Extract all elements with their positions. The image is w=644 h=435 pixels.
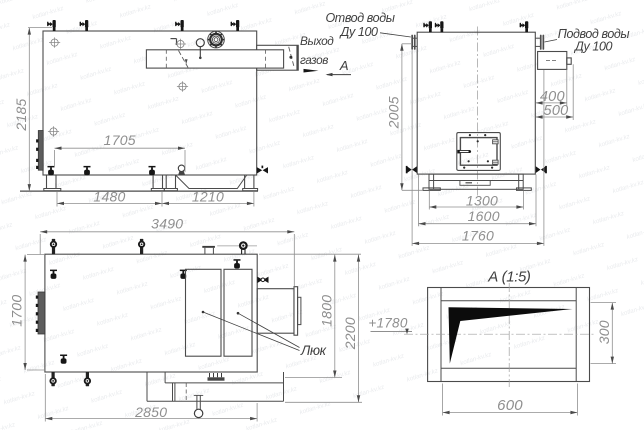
svg-text:1210: 1210 — [192, 188, 224, 204]
svg-text:2005: 2005 — [385, 96, 401, 129]
svg-text:Отвод воды: Отвод воды — [325, 11, 394, 25]
svg-text:2200: 2200 — [342, 317, 358, 350]
svg-text:1760: 1760 — [462, 227, 494, 243]
svg-text:1480: 1480 — [93, 188, 125, 204]
svg-text:1800: 1800 — [318, 295, 334, 327]
svg-text:1600: 1600 — [468, 208, 500, 224]
svg-text:Ду 100: Ду 100 — [338, 25, 378, 39]
svg-text:300: 300 — [596, 320, 612, 344]
svg-text:+1780: +1780 — [368, 316, 407, 331]
svg-text:600: 600 — [497, 397, 523, 414]
svg-text:3490: 3490 — [151, 216, 183, 232]
svg-text:Ду 100: Ду 100 — [573, 40, 613, 54]
svg-text:Люк: Люк — [300, 343, 327, 358]
svg-text:2850: 2850 — [134, 404, 167, 420]
svg-text:А: А — [339, 58, 348, 73]
svg-text:1300: 1300 — [466, 192, 498, 208]
svg-text:1705: 1705 — [104, 132, 136, 148]
svg-text:1700: 1700 — [9, 295, 25, 327]
svg-text:газов: газов — [300, 53, 328, 67]
svg-text:Выход: Выход — [300, 34, 334, 48]
svg-text:А (1:5): А (1:5) — [487, 269, 531, 286]
svg-text:500: 500 — [544, 103, 569, 119]
svg-text:2185: 2185 — [13, 98, 29, 131]
